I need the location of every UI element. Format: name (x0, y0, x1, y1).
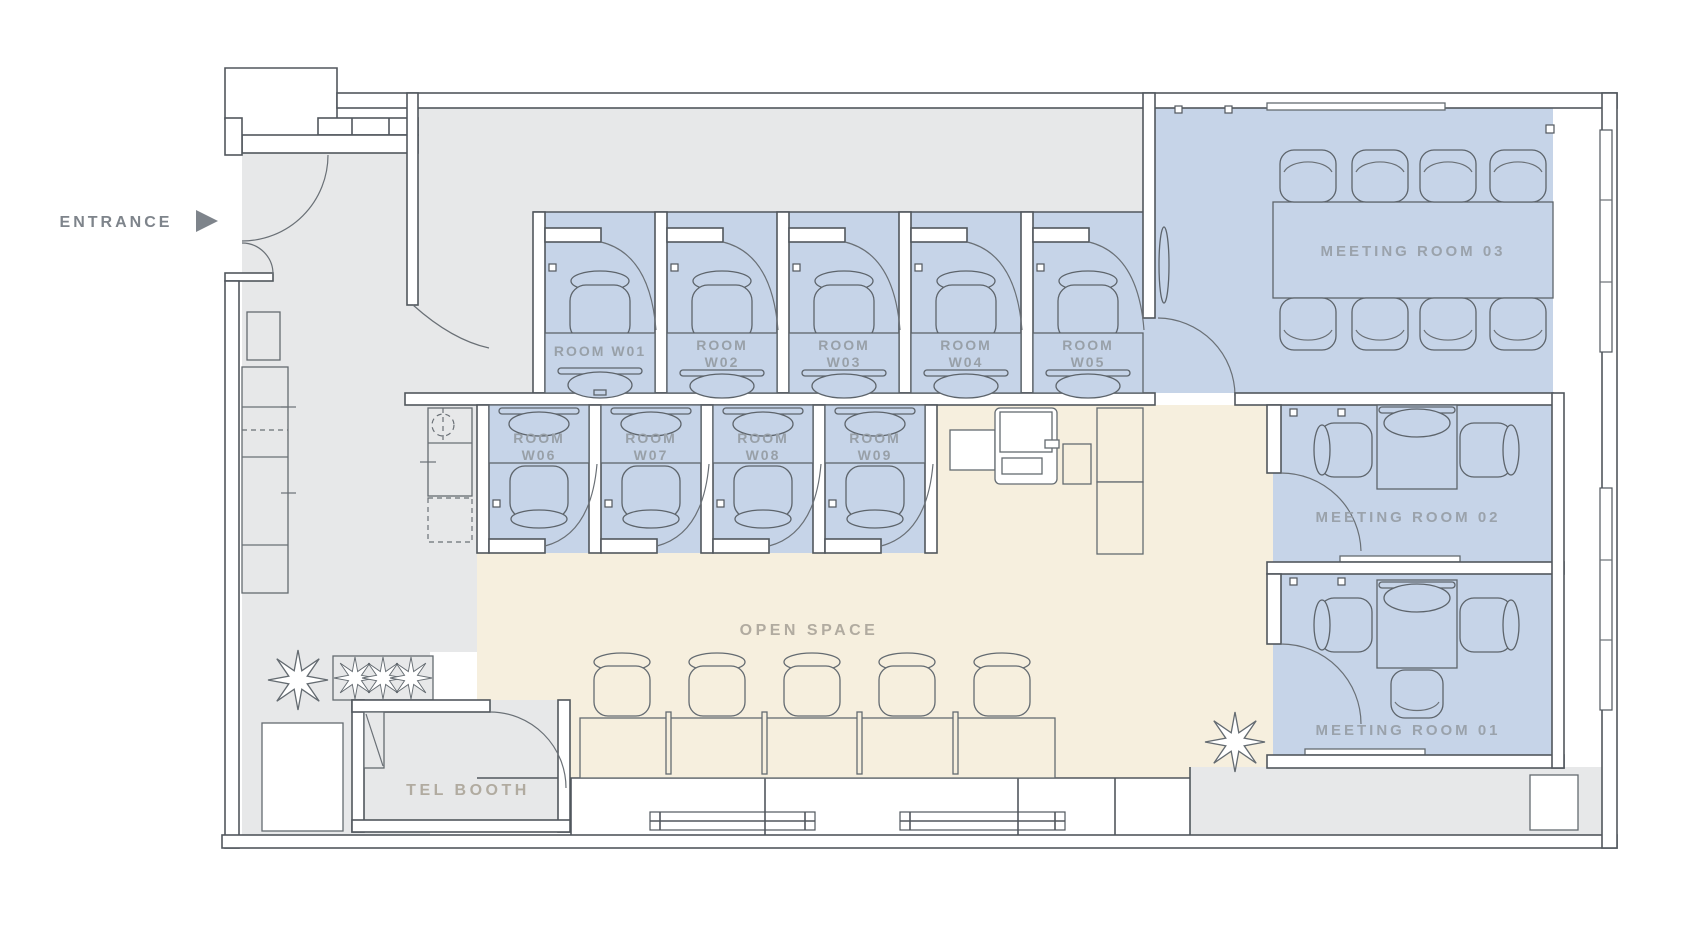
tel-booth-label: TEL BOOTH (406, 782, 530, 799)
svg-text:ROOM: ROOM (940, 337, 992, 353)
open-space-label: OPEN SPACE (740, 622, 879, 639)
copier-side-unit (950, 430, 995, 470)
left-wall (225, 281, 239, 848)
row1-bottom-wall (405, 393, 1155, 405)
svg-text:ROOM: ROOM (696, 337, 748, 353)
svg-text:ROOM: ROOM (513, 430, 565, 446)
plant-icon (390, 657, 432, 699)
entry-lower-stub (225, 273, 273, 281)
svg-text:W04: W04 (949, 354, 984, 370)
whiteboard (1305, 749, 1425, 755)
counter-left (242, 367, 288, 593)
closet (262, 723, 343, 831)
svg-text:W08: W08 (746, 447, 781, 463)
plant-icon (268, 650, 328, 710)
meeting-room-02-label: MEETING ROOM 02 (1315, 509, 1500, 526)
left-wall-upper-stub (225, 118, 242, 155)
cabinet-box (247, 312, 280, 360)
floor-plan-canvas: ENTRANCE (0, 0, 1706, 945)
window-right-lower (1600, 488, 1612, 710)
tel-booth-zone (352, 700, 570, 832)
svg-text:ROOM: ROOM (625, 430, 677, 446)
closet (1530, 775, 1578, 830)
divider-wall (1267, 562, 1564, 574)
svg-text:W02: W02 (705, 354, 740, 370)
floor-plan: ENTRANCE (0, 0, 1706, 945)
meeting-room-01-label: MEETING ROOM 01 (1315, 722, 1500, 739)
top-left-notch (225, 68, 337, 120)
svg-text:W03: W03 (827, 354, 862, 370)
bottom-wall (222, 835, 1617, 848)
plant-icon (1205, 712, 1265, 772)
tv-screen-icon (1159, 227, 1169, 303)
whiteboard (1267, 103, 1445, 110)
svg-text:ROOM: ROOM (849, 430, 901, 446)
entrance-label: ENTRANCE (60, 214, 173, 231)
meeting-room-01-bottom-wall (1267, 755, 1564, 768)
meeting-room-03-left-wall (1143, 93, 1155, 318)
svg-text:W06: W06 (522, 447, 557, 463)
svg-text:ROOM: ROOM (1062, 337, 1114, 353)
svg-text:W05: W05 (1071, 354, 1106, 370)
entry-top-wall (242, 135, 418, 153)
whiteboard (1340, 556, 1460, 562)
window-bottom-left (650, 812, 815, 830)
cabinet (1097, 408, 1143, 482)
meeting-rooms-top-wall (1235, 393, 1553, 405)
room-w01-label: ROOM W01 (554, 343, 646, 359)
svg-text:ROOM: ROOM (818, 337, 870, 353)
corridor-entry (242, 153, 533, 393)
side-table (1063, 444, 1091, 484)
meeting-room-03-label: MEETING ROOM 03 (1320, 243, 1505, 260)
svg-text:W07: W07 (634, 447, 669, 463)
kitchenette-counter (428, 408, 472, 496)
entrance-arrow-icon (196, 210, 218, 232)
svg-text:ROOM: ROOM (737, 430, 789, 446)
top-left-wall-segment (318, 118, 418, 135)
meeting-rooms-right-wall (1552, 393, 1564, 768)
counter-desk (580, 718, 1055, 778)
cabinet (1097, 482, 1143, 554)
window-right-upper (1600, 130, 1612, 352)
window-bottom-right (900, 812, 1065, 830)
svg-text:W09: W09 (858, 447, 893, 463)
